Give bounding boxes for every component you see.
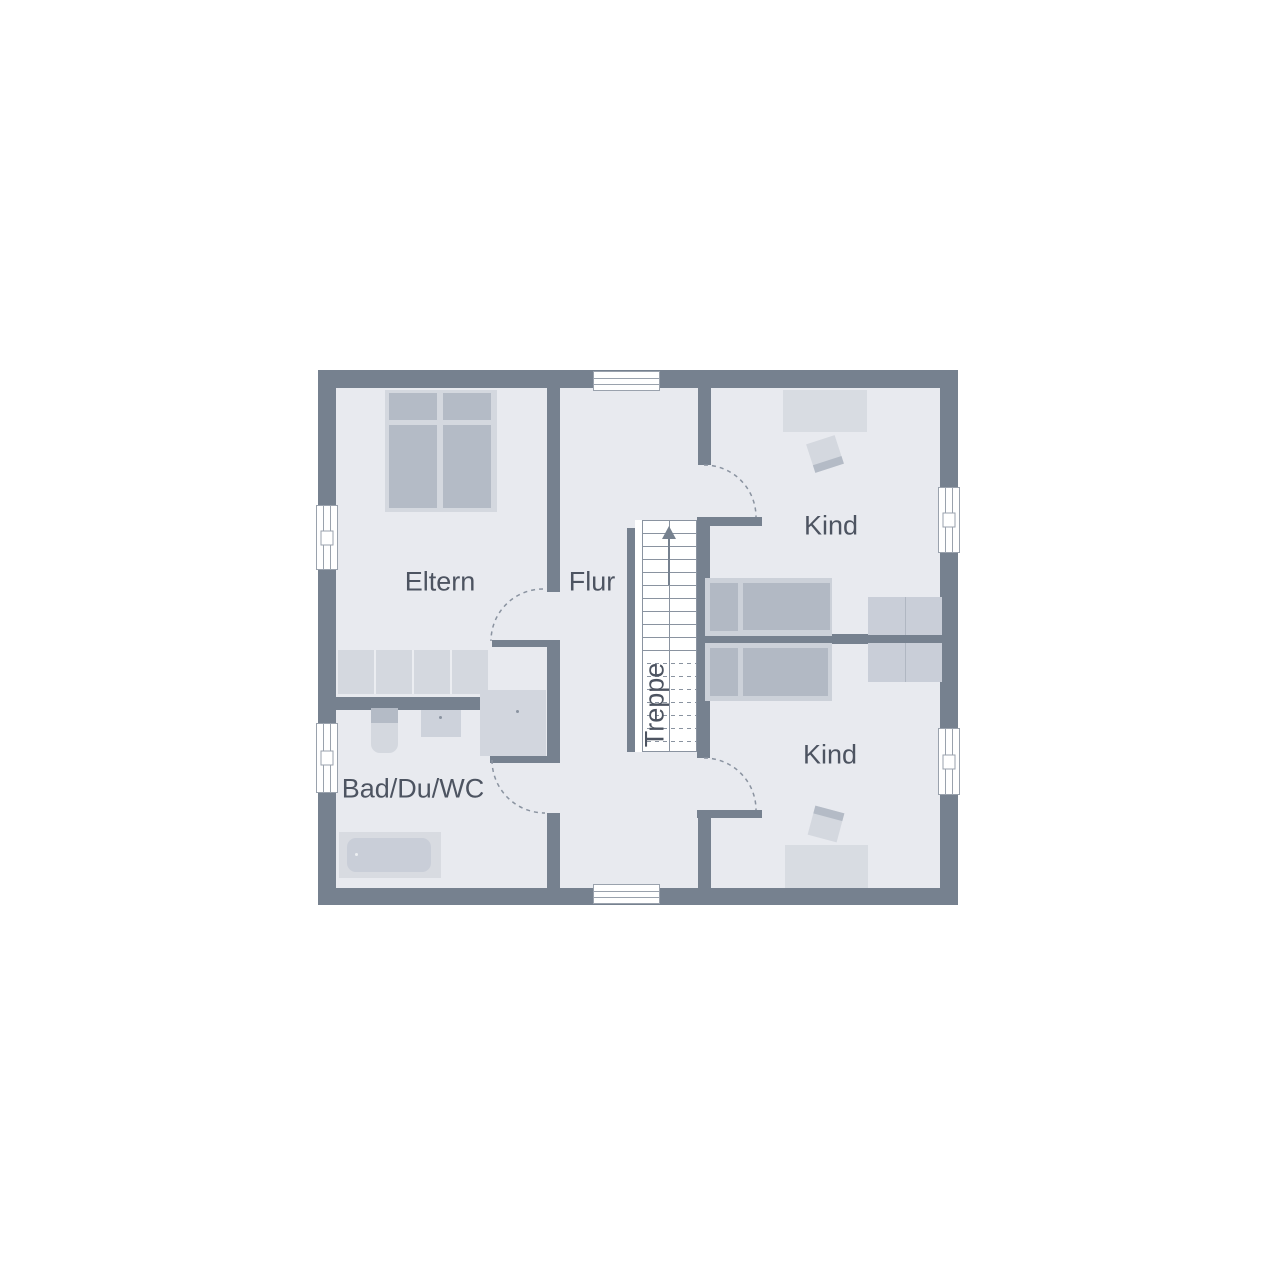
bed-parents [385, 390, 497, 512]
bed-mattress [743, 648, 828, 696]
bed-kind-top [705, 578, 832, 636]
wall-center-vertical [547, 640, 560, 763]
sink-drain-dot [439, 716, 442, 719]
window-frame-line [594, 378, 659, 379]
shower-drain-dot [516, 710, 519, 713]
stairs-direction-arrow [668, 537, 670, 585]
wall-bath-separator [336, 697, 482, 710]
window-handle [321, 530, 334, 545]
room-label-treppe: Treppe [640, 663, 671, 748]
stairs-arrow-head-icon [662, 526, 676, 539]
wardrobe-divider [412, 650, 414, 694]
room-label-kind-bottom: Kind [803, 740, 857, 771]
chair-back [813, 456, 844, 473]
wardrobe-divider [450, 650, 452, 694]
wall-kind-top-door-stub [697, 517, 762, 526]
dresser-divider [905, 643, 906, 682]
window-handle [943, 513, 956, 528]
outer-wall-right [940, 370, 958, 905]
bed-pillow [710, 583, 738, 631]
window-handle [321, 751, 334, 766]
window-right-kind-top [938, 487, 960, 553]
wardrobe-divider [374, 650, 376, 694]
dresser-kind-bottom [868, 643, 942, 682]
bed-pillow [443, 393, 491, 420]
bed-mattress [743, 583, 830, 630]
sink [421, 710, 461, 737]
floor-plan: Eltern Flur Kind Kind Bad/Du/WC Treppe [318, 370, 958, 905]
wall-bath-door-stub [547, 813, 560, 888]
dresser-kind-top [868, 597, 942, 635]
bed-pillow [389, 393, 437, 420]
window-frame-line [594, 891, 659, 892]
window-left-bad [316, 723, 338, 793]
desk-kind-top [783, 390, 867, 432]
toilet-tank [371, 708, 398, 723]
window-bottom [593, 884, 660, 904]
room-label-eltern: Eltern [405, 567, 476, 598]
wall-eltern-flur [547, 388, 560, 592]
toilet-bowl [371, 723, 398, 753]
window-frame-line [594, 384, 659, 385]
outer-wall-left [318, 370, 336, 905]
door-arc-eltern [491, 589, 543, 641]
door-arc-kind-bottom [704, 758, 756, 810]
bed-kind-bottom [705, 643, 832, 701]
door-arc-bad [492, 760, 545, 813]
wall-kind-bottom-vertical [698, 812, 711, 888]
shower [480, 690, 546, 756]
room-label-bad: Bad/Du/WC [342, 774, 485, 805]
wall-kind-top-vertical [698, 388, 711, 465]
wardrobe-parents [338, 650, 488, 694]
bathtub-basin [347, 838, 431, 872]
room-label-kind-top: Kind [804, 511, 858, 542]
bed-mattress [443, 425, 491, 508]
chair-kind-top [806, 435, 844, 473]
dresser-divider [905, 597, 906, 635]
window-right-kind-bottom [938, 728, 960, 795]
door-arc-kind-top [704, 465, 756, 517]
desk-kind-bottom [785, 845, 868, 888]
bed-mattress [389, 425, 437, 508]
window-handle [943, 754, 956, 769]
window-left-eltern [316, 505, 338, 570]
bathtub-drain-dot [355, 853, 358, 856]
bed-pillow [710, 648, 738, 696]
window-top [593, 371, 660, 391]
chair-back [813, 806, 844, 821]
bathtub [339, 832, 441, 878]
wall-shower-bottom [490, 756, 560, 763]
room-label-flur: Flur [569, 567, 616, 598]
chair-kind-bottom [808, 806, 845, 843]
window-frame-line [594, 897, 659, 898]
